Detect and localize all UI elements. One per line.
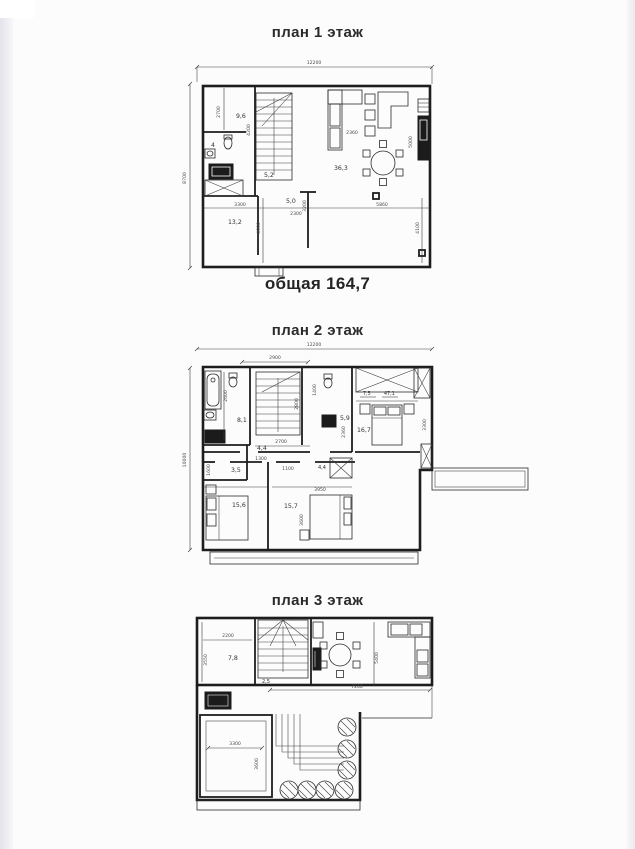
dim-label: 4200 — [246, 124, 252, 136]
dim-label: 2300 — [290, 211, 302, 217]
dim-width-total: 12200 — [307, 60, 322, 66]
floor3-plan: 2200 3550 7200 5400 7,8 2,5 — [197, 618, 432, 810]
floor2-wc-fixtures — [322, 374, 336, 427]
dim-label: 3550 — [203, 654, 209, 666]
dim-height-total: 10000 — [182, 453, 188, 468]
room-label: 2,5 — [262, 679, 270, 685]
dim-label: 5400 — [374, 652, 380, 664]
dim-label: 1600 — [206, 464, 212, 476]
dim-label: 5000 — [408, 136, 414, 148]
dim-width-total: 12200 — [307, 342, 322, 348]
dim-label: 3200 — [302, 200, 308, 212]
nightstand-icon — [360, 404, 370, 414]
floor2-bathroom-fixtures — [204, 371, 237, 443]
bed-icon — [372, 405, 402, 445]
dim-label: 2200 — [222, 633, 234, 639]
room-label: 47,1 — [384, 391, 395, 397]
dim-label: 1300 — [255, 456, 267, 462]
room-label: 7,5 — [363, 391, 371, 397]
chair-icon — [353, 661, 360, 668]
floor2-stairs — [256, 372, 300, 435]
floor3-stairs — [258, 620, 308, 678]
room-label: 3,5 — [231, 467, 241, 474]
floor3-wall-fixtures — [313, 622, 323, 670]
kitchen-counter-icon — [378, 92, 408, 128]
floor2-balcony — [432, 468, 528, 490]
room-label: 5,2 — [264, 172, 274, 179]
bed-icon — [310, 495, 352, 539]
floor1-entry-step — [255, 267, 283, 276]
dim-label: 2800 — [294, 398, 300, 410]
nightstand-icon — [404, 404, 414, 414]
dim-label: 2700 — [275, 439, 287, 445]
chair-icon — [363, 169, 370, 176]
equipment-icon — [205, 692, 231, 709]
stool-icon — [365, 110, 375, 120]
room-label: 5,0 — [286, 198, 296, 205]
stove-icon — [418, 99, 429, 112]
chair-icon — [396, 169, 403, 176]
dim-label: 3300 — [234, 202, 246, 208]
floor3-dining-set — [320, 633, 360, 678]
toilet-icon — [324, 378, 332, 388]
chair-icon — [337, 671, 344, 678]
terrace-steps — [276, 714, 344, 746]
chair-icon — [380, 141, 387, 148]
dim-label: 2900 — [269, 355, 281, 361]
room-label: 5,9 — [340, 415, 350, 422]
room-label: 9,6 — [236, 113, 246, 120]
sink-icon — [322, 415, 336, 427]
chair-icon — [353, 642, 360, 649]
dim-label: 2360 — [346, 130, 358, 136]
dim-label: 3600 — [299, 514, 305, 526]
dim-label: 1100 — [282, 466, 294, 472]
dim-label: 3300 — [422, 419, 428, 431]
stool-icon — [365, 126, 375, 136]
stool-icon — [365, 94, 375, 104]
room-label: 15,7 — [284, 503, 298, 510]
dim-label: 4000 — [256, 222, 262, 234]
dim-label: 7200 — [351, 684, 363, 690]
nightstand-icon — [206, 485, 216, 494]
sink-icon — [205, 149, 215, 158]
dim-height-total: 8700 — [182, 172, 188, 184]
floor2-dimension-lines: 12200 2900 10000 — [182, 342, 434, 552]
room-label: 15,6 — [232, 502, 246, 509]
round-table-icon — [329, 644, 351, 666]
dim-label: 3600 — [254, 758, 260, 770]
room-label: 4,4 — [318, 465, 326, 471]
floor-plans-drawing: 12200 8700 — [0, 0, 635, 849]
room-label: 7,8 — [228, 655, 238, 662]
floor2-bedroom-middle — [300, 495, 352, 540]
room-label: 4 — [211, 142, 215, 149]
floor2-closets — [330, 444, 432, 478]
dim-label: 1400 — [312, 384, 318, 396]
floor3-sofa — [388, 622, 430, 678]
dim-label: 2360 — [341, 426, 347, 438]
washing-machine-icon — [205, 430, 225, 443]
dim-label: 5860 — [376, 202, 388, 208]
nightstand-icon — [300, 530, 309, 540]
floor1-stairs — [256, 93, 292, 180]
floor3-roof-terrace: 3300 3600 — [197, 685, 432, 810]
chair-icon — [337, 633, 344, 640]
terrace-room — [200, 715, 272, 797]
room-label: 36,3 — [334, 165, 348, 172]
chair-icon — [396, 150, 403, 157]
dim-label: 4100 — [415, 222, 421, 234]
dim-label: 3300 — [229, 741, 241, 747]
room-label: 8,1 — [237, 417, 247, 424]
floor2-bedroom-left — [206, 485, 248, 540]
toilet-icon — [229, 377, 237, 387]
dining-table-icon — [371, 151, 395, 175]
floor1-plan: 12200 8700 — [182, 60, 434, 276]
floor2-bedroom-right — [356, 401, 418, 445]
washing-machine-icon — [209, 164, 233, 179]
planter-icons — [280, 718, 356, 799]
chair-icon — [363, 150, 370, 157]
room-label: 13,2 — [228, 219, 242, 226]
dim-label: 3950 — [314, 487, 326, 493]
dim-label: 2700 — [216, 106, 222, 118]
room-label: 16,7 — [357, 427, 371, 434]
floorplan-sheet: план 1 этаж общая 164,7 план 2 этаж план… — [0, 0, 635, 849]
chair-icon — [380, 179, 387, 186]
floor2-plan: 12200 2900 10000 — [182, 342, 528, 564]
floor2-lower-terrace — [210, 552, 418, 564]
